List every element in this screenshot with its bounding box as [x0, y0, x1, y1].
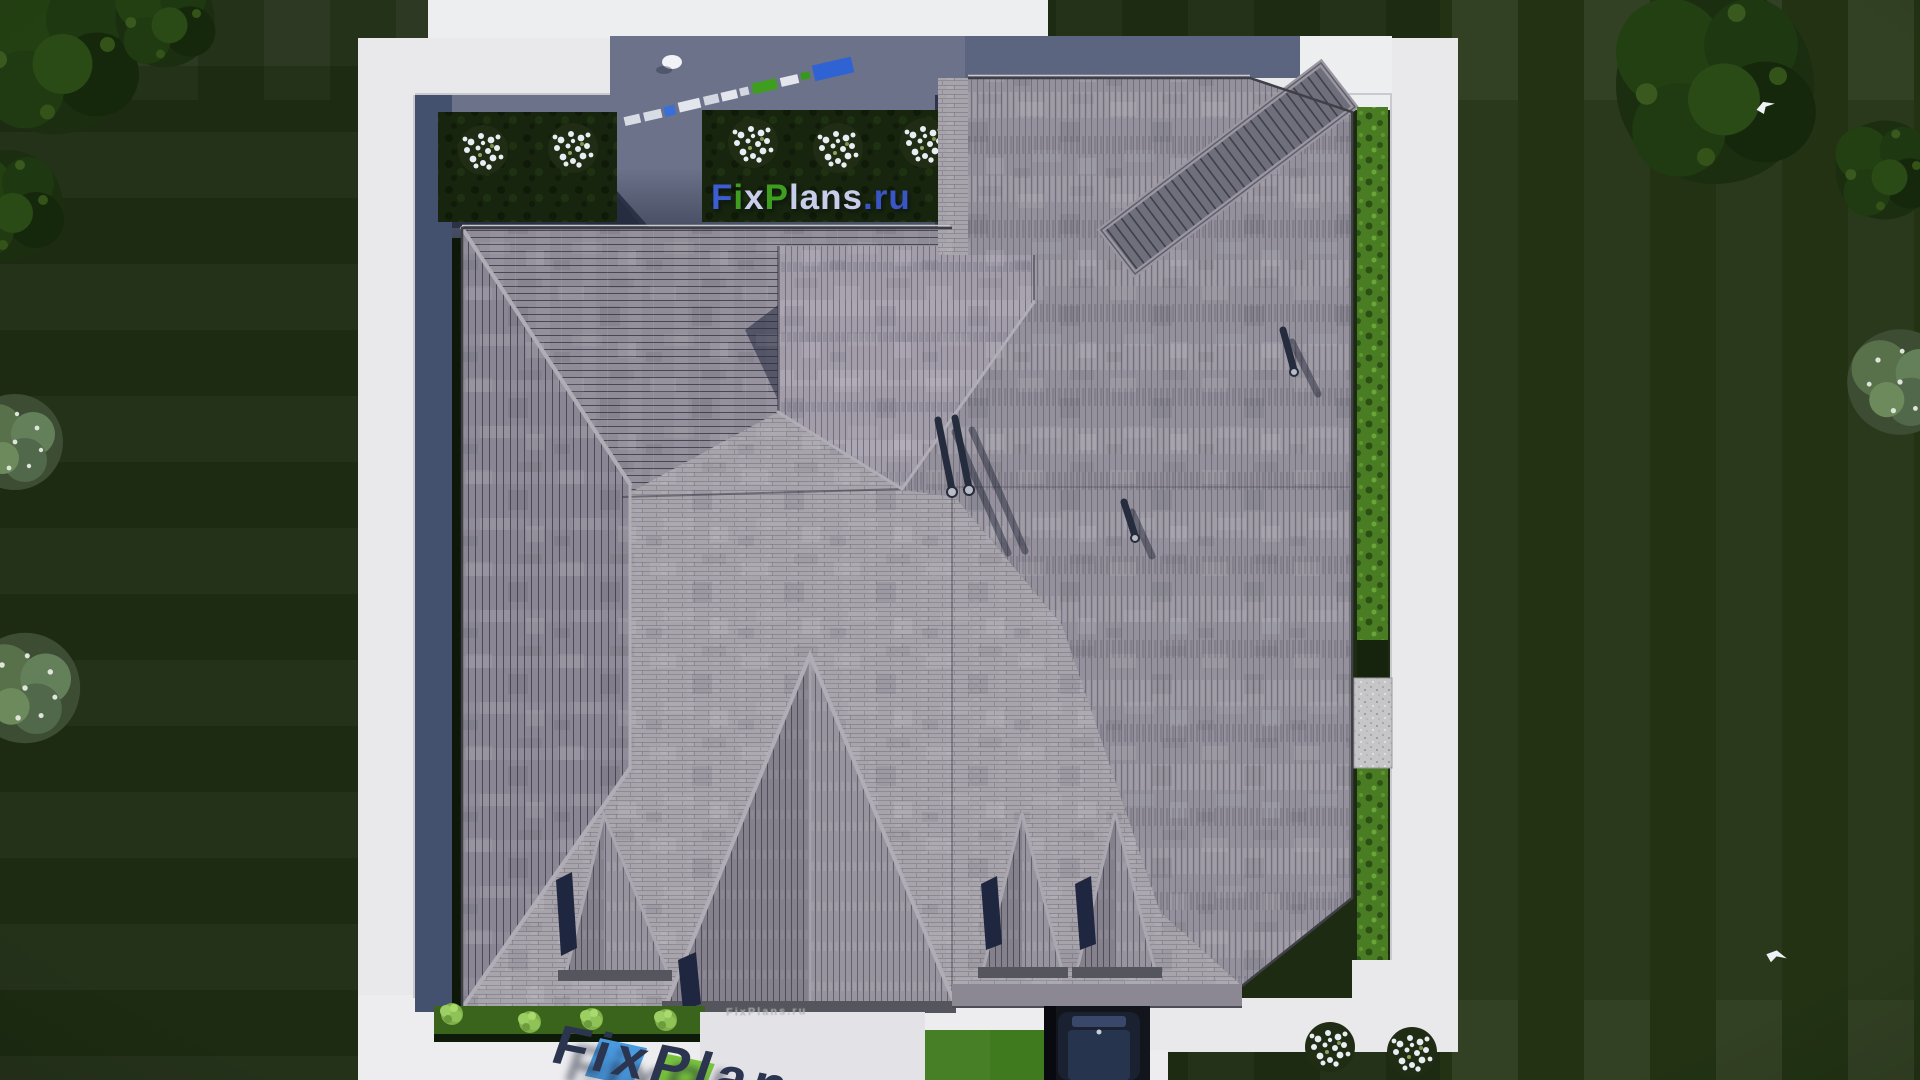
watermark-part: i [733, 178, 744, 217]
watermark-part: F [711, 178, 733, 217]
embossed-watermark-text: FixPlans.ru [726, 1005, 807, 1018]
garage [1044, 1006, 1150, 1080]
tree [1616, 0, 1816, 184]
tree [1836, 121, 1920, 220]
flower-bush [1387, 1027, 1437, 1077]
garage-eave [952, 984, 1242, 1008]
left-walkway [415, 95, 452, 1012]
flower-bush [458, 125, 508, 175]
car-windshield [1072, 1016, 1126, 1027]
car-emblem [1097, 1030, 1102, 1035]
watermark-part: .ru [863, 178, 911, 217]
watermark-part: x [744, 178, 764, 217]
embossed-porch-watermark: FixPlans.ru [726, 1005, 807, 1018]
watermark-part: lans [789, 178, 863, 217]
flower-bush [1305, 1022, 1355, 1072]
watermark-part: P [765, 178, 789, 217]
gravel-pad [1354, 678, 1392, 768]
rear-walkway-strip [965, 36, 1300, 78]
ground-east [1352, 107, 1392, 1002]
flower-bush [548, 123, 598, 173]
render-canvas [0, 0, 1920, 1080]
aerial-house-render: FixPlans FixPlans.ru FixPlans.ru [0, 0, 1920, 1080]
right-hedge [1357, 107, 1388, 960]
flower-bush [728, 118, 778, 168]
site-watermark: FixPlans.ru [711, 178, 911, 218]
flower-bush [813, 123, 863, 173]
car [1058, 1012, 1140, 1080]
